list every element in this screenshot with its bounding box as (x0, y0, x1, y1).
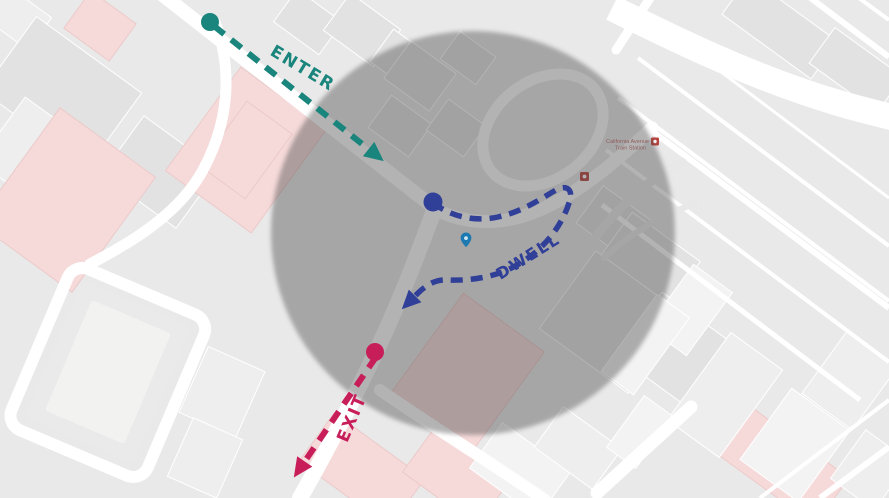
geofence-circle (271, 31, 675, 435)
exit-start-dot (366, 343, 384, 361)
journey-map-figure: California Avenue Train Station ENTER DW… (0, 0, 889, 498)
enter-start-dot (201, 13, 219, 31)
dwell-start-dot (424, 193, 443, 212)
base-map: California Avenue Train Station ENTER DW… (0, 0, 889, 498)
